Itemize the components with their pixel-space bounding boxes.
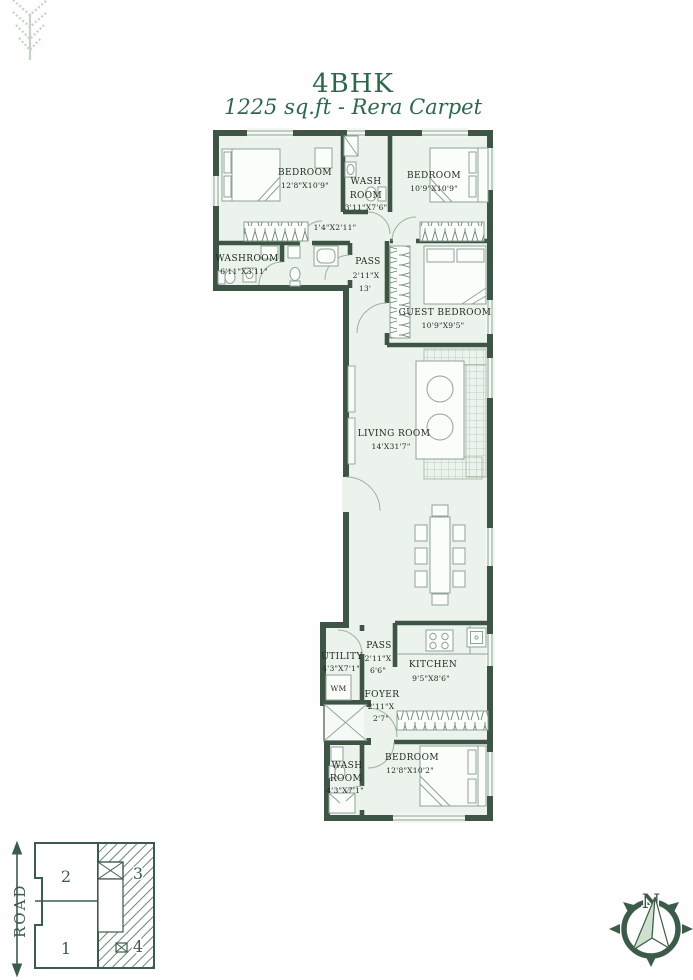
wash-basin — [288, 246, 300, 258]
floor-plan-page: 4BHK 1225 sq.ft - Rera Carpet — [0, 0, 693, 980]
room-dims-washroom-top: 3'11"X7'6" — [345, 203, 388, 212]
shower — [329, 793, 355, 813]
key-plan-unit-2: 2 — [61, 867, 71, 886]
room-dims-bedroom-bottom: 12'8"X10'2" — [386, 766, 434, 775]
window — [247, 128, 293, 138]
washing-machine-label: WM — [331, 684, 347, 693]
compass-icon: N — [609, 889, 693, 967]
window — [211, 176, 221, 206]
window — [485, 528, 495, 566]
room-label-passage-main: PASS — [355, 257, 381, 267]
toilet — [290, 268, 300, 287]
leaf-logo-icon — [13, 0, 47, 60]
room-label-living-room: LIVING ROOM — [358, 429, 431, 439]
lift-shaft — [324, 704, 367, 741]
room-label-washroom-bottom-1: WASH — [332, 761, 363, 771]
key-plan-unit-1: 1 — [61, 939, 71, 958]
room-label-bedroom-top-right: BEDROOM — [407, 171, 461, 181]
stove — [426, 630, 453, 651]
room-label-bedroom-top-left: BEDROOM — [278, 168, 332, 178]
room-label-washroom-top-1: WASH — [351, 177, 382, 187]
wardrobe — [420, 222, 484, 241]
window — [348, 418, 355, 464]
key-plan-shaft — [116, 943, 127, 952]
room-dims-foyer-1: 2'11"X — [368, 702, 395, 711]
road-label: ROAD — [11, 884, 29, 938]
key-plan-lobby — [98, 879, 123, 932]
room-dims-passage-kitchen-2: 6'6" — [370, 666, 386, 675]
window — [393, 813, 465, 823]
room-dims-washroom-bottom: 4'3"X7'1" — [326, 786, 364, 795]
page-subtitle: 1225 sq.ft - Rera Carpet — [224, 95, 483, 119]
room-dims-guest-bedroom: 10'9"X9'5" — [422, 321, 465, 330]
room-label-washroom-left: WASHROOM — [215, 254, 278, 264]
key-plan-unit-4: 4 — [133, 937, 143, 956]
double-bed — [222, 149, 280, 201]
room-label-washroom-bottom-2: ROOM — [330, 774, 362, 784]
room-dims-mini-passage: 1'4"X2'11" — [314, 223, 357, 232]
floor-plan-canvas: 4BHK 1225 sq.ft - Rera Carpet — [0, 0, 693, 980]
sofa-unit — [416, 361, 464, 459]
room-label-kitchen: KITCHEN — [409, 660, 457, 670]
room-dims-foyer-2: 2'7" — [373, 714, 389, 723]
room-label-guest-bedroom: GUEST BEDROOM — [399, 308, 492, 318]
room-dims-passage-main-2: 13' — [359, 284, 371, 293]
room-dims-bedroom-top-right: 10'9"X10'9" — [410, 184, 458, 193]
wash-basin — [331, 747, 343, 761]
room-dims-passage-kitchen-1: 2'11"X — [365, 654, 392, 663]
bedside-table — [315, 148, 332, 168]
window — [485, 358, 495, 398]
wardrobe — [390, 246, 410, 338]
duct — [344, 136, 358, 156]
room-dims-living-room: 14'X31'7" — [371, 442, 410, 451]
room-label-bedroom-bottom: BEDROOM — [385, 753, 439, 763]
window — [348, 366, 355, 412]
room-label-foyer: FOYER — [365, 690, 400, 700]
wash-basin — [345, 162, 356, 177]
kitchen-sink — [467, 628, 486, 647]
key-plan: ROAD 2 1 3 4 — [11, 842, 154, 976]
key-plan-lift — [98, 862, 123, 879]
double-bed — [424, 246, 486, 304]
room-label-washroom-top-2: ROOM — [350, 191, 382, 201]
door-gap-living — [342, 477, 351, 512]
room-dims-kitchen: 9'5"X8'6" — [412, 674, 450, 683]
deck-rug — [424, 457, 482, 479]
floor-plan: BEDROOM 12'8"X10'9" WASH ROOM 3'11"X7'6"… — [211, 128, 495, 823]
bathtub — [314, 246, 338, 266]
room-dims-utility: 4'3"X7'1" — [322, 664, 360, 673]
window — [422, 128, 468, 138]
room-dims-bedroom-top-left: 12'8"X10'9" — [281, 181, 329, 190]
room-label-passage-kitchen: PASS — [366, 641, 392, 651]
room-label-utility: UTILITY — [321, 652, 363, 662]
room-dims-washroom-left: 6'11"X3'11" — [220, 267, 268, 276]
wardrobe — [244, 222, 308, 241]
kitchen-storage — [397, 711, 488, 730]
room-dims-passage-main-1: 2'11"X — [353, 271, 380, 280]
door-gap-entrance — [364, 707, 373, 738]
key-plan-unit-3: 3 — [133, 864, 143, 883]
